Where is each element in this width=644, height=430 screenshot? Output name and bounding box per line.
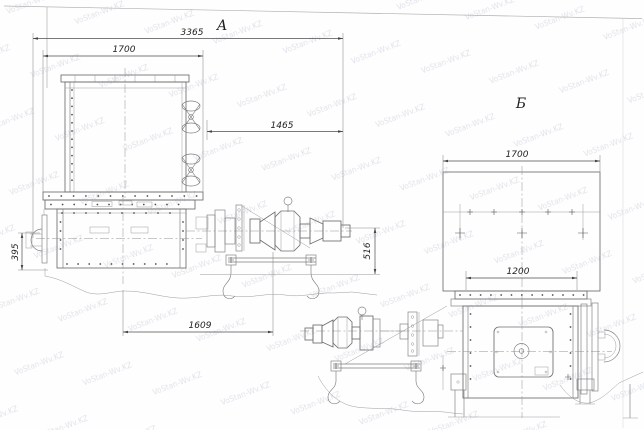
dim-text-base-span: 1609 — [189, 321, 212, 331]
dim-text-overall-width: 3365 — [181, 28, 204, 38]
dim-text-drive-span: 1465 — [271, 121, 294, 131]
dim-text-body-width: 1700 — [506, 150, 529, 160]
dim-text-drive-height: 516 — [363, 242, 373, 259]
view-b-label: Б — [515, 96, 526, 112]
view-a-label: A — [215, 18, 227, 34]
dim-text-bracket-height: 395 — [11, 243, 21, 260]
dim-text-flange-width: 1200 — [507, 267, 530, 277]
dim-text-hopper-width: 1700 — [113, 45, 136, 55]
watermark-layer — [0, 0, 644, 430]
drawing-sheet: VoStan-Wv.KZ VoStan-Wv.KZ — [0, 0, 644, 430]
cad-drawing: VoStan-Wv.KZ VoStan-Wv.KZ — [0, 0, 644, 430]
